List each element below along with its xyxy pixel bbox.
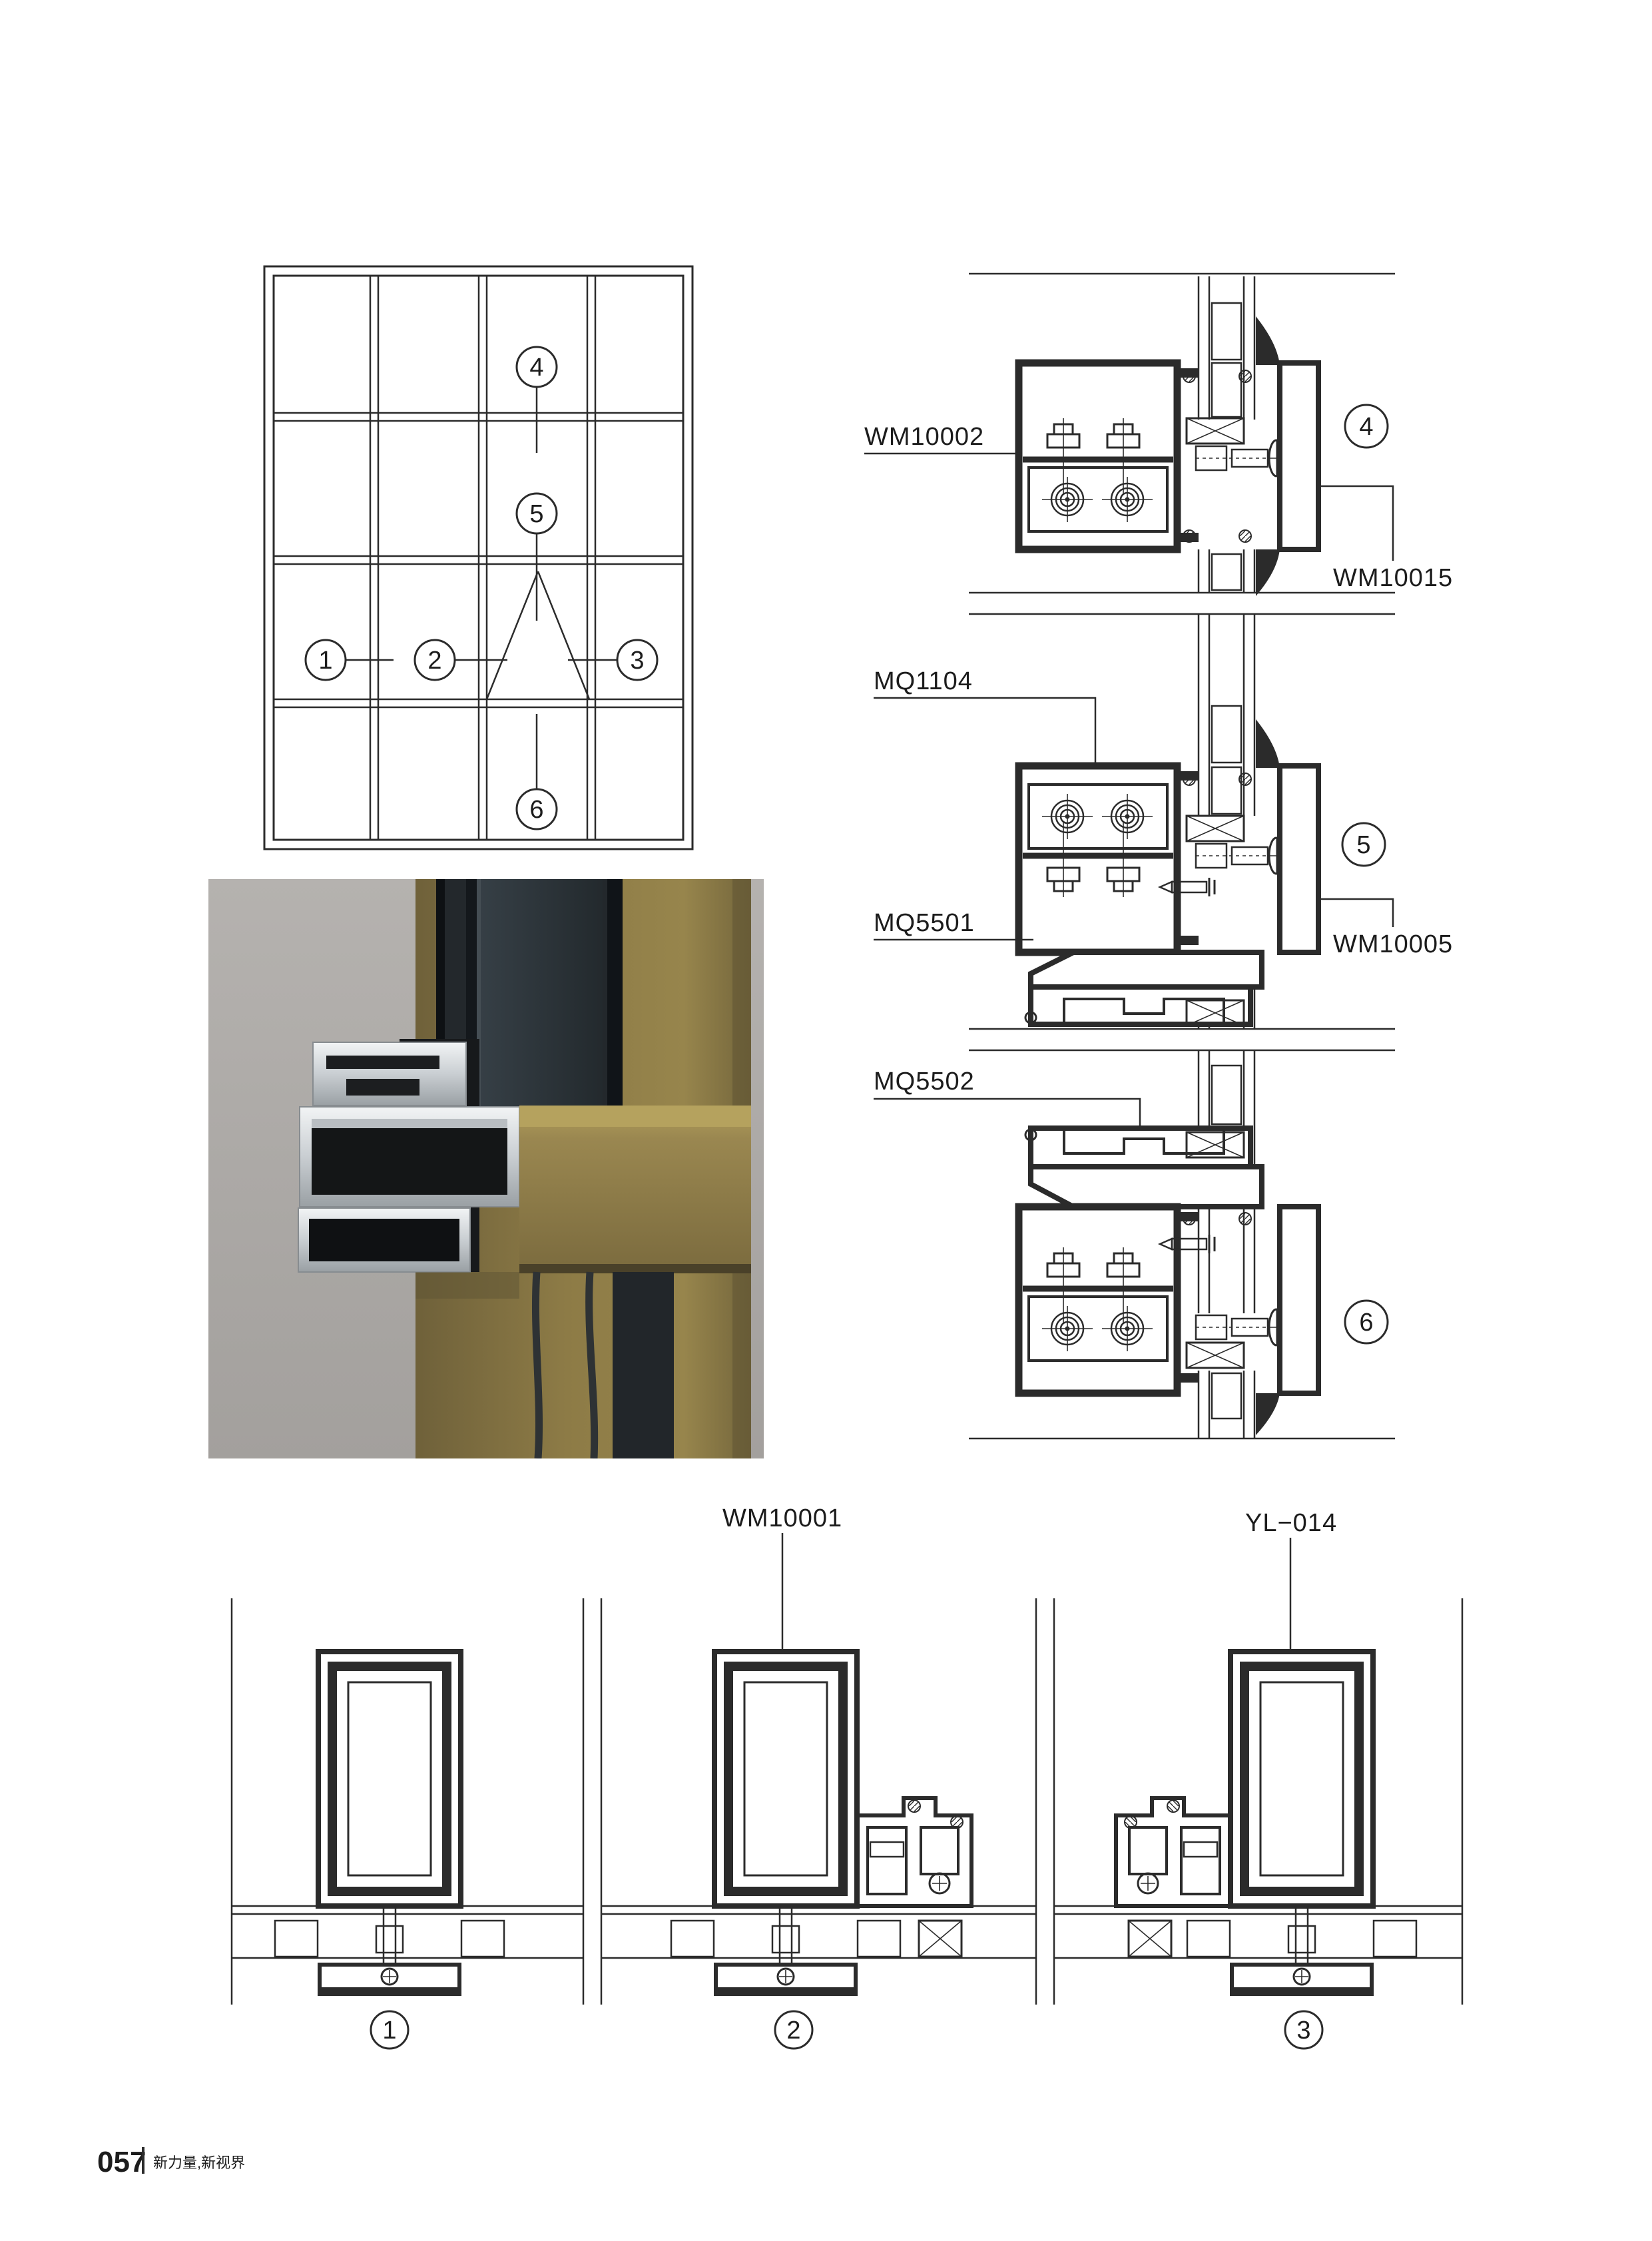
detail-callout-6: 6 xyxy=(1345,1301,1388,1343)
plan-detail-1 xyxy=(232,1652,583,1995)
page-drawing-canvas: 4 5 1 2 3 6 xyxy=(0,0,1652,2241)
render-3d-mullion-image xyxy=(208,879,764,1458)
detail-callout-4-label: 4 xyxy=(1359,413,1373,441)
plan-detail-3 xyxy=(1054,1652,1462,1995)
callout-3-label: 3 xyxy=(630,647,644,675)
setting-block-x xyxy=(919,1921,962,1957)
footer-tagline: 新力量,新视界 xyxy=(153,2154,245,2171)
section-detail-4 xyxy=(1019,316,1318,596)
catalog-page: 4 5 1 2 3 6 xyxy=(0,0,1652,2241)
page-number: 057 xyxy=(97,2146,146,2178)
detail-callout-4: 4 xyxy=(1345,405,1388,448)
elevation-key-plan: 4 5 1 2 3 6 xyxy=(264,266,692,849)
plan-callout-1-label: 1 xyxy=(382,2017,396,2045)
plan-callout-1: 1 xyxy=(371,2011,408,2049)
detail-callout-6-label: 6 xyxy=(1359,1309,1373,1337)
plan-callout-2: 2 xyxy=(775,2011,812,2049)
callout-6: 6 xyxy=(517,789,557,829)
section-detail-6 xyxy=(1019,1128,1318,1435)
footer-divider xyxy=(142,2147,144,2174)
label-wm10001: WM10001 xyxy=(722,1504,842,1532)
callout-2-label: 2 xyxy=(427,647,441,675)
callout-1-label: 1 xyxy=(318,647,332,675)
callout-6-label: 6 xyxy=(529,796,543,824)
detail-callout-5-label: 5 xyxy=(1356,831,1370,859)
callout-1: 1 xyxy=(306,640,346,680)
vertical-section-column: WM10002 WM10015 MQ1104 MQ5501 WM10005 MQ… xyxy=(864,274,1453,1439)
plan-section-row: WM10001 YL−014 xyxy=(232,1504,1462,2049)
callout-5: 5 xyxy=(517,493,557,533)
label-wm10002: WM10002 xyxy=(864,423,984,451)
label-mq5501: MQ5501 xyxy=(874,909,975,937)
callout-2: 2 xyxy=(415,640,455,680)
callout-3: 3 xyxy=(617,640,657,680)
plan-detail-2 xyxy=(601,1652,1036,1995)
section-detail-5 xyxy=(1019,719,1318,1026)
plan-callout-2-label: 2 xyxy=(786,2017,800,2045)
label-wm10015: WM10015 xyxy=(1333,564,1453,592)
label-mq1104: MQ1104 xyxy=(874,667,973,695)
detail-callout-5: 5 xyxy=(1342,823,1385,866)
callout-4-label: 4 xyxy=(529,354,543,382)
setting-block-x xyxy=(1129,1921,1171,1957)
vent-triangle xyxy=(487,571,589,699)
label-mq5502: MQ5502 xyxy=(874,1068,975,1096)
plan-callout-3: 3 xyxy=(1285,2011,1322,2049)
page-footer: 057 新力量,新视界 xyxy=(97,2146,245,2178)
callout-5-label: 5 xyxy=(529,500,543,528)
plan-callout-3-label: 3 xyxy=(1296,2017,1310,2045)
label-yl014: YL−014 xyxy=(1245,1509,1337,1537)
callout-4: 4 xyxy=(517,347,557,387)
label-wm10005: WM10005 xyxy=(1333,930,1453,958)
